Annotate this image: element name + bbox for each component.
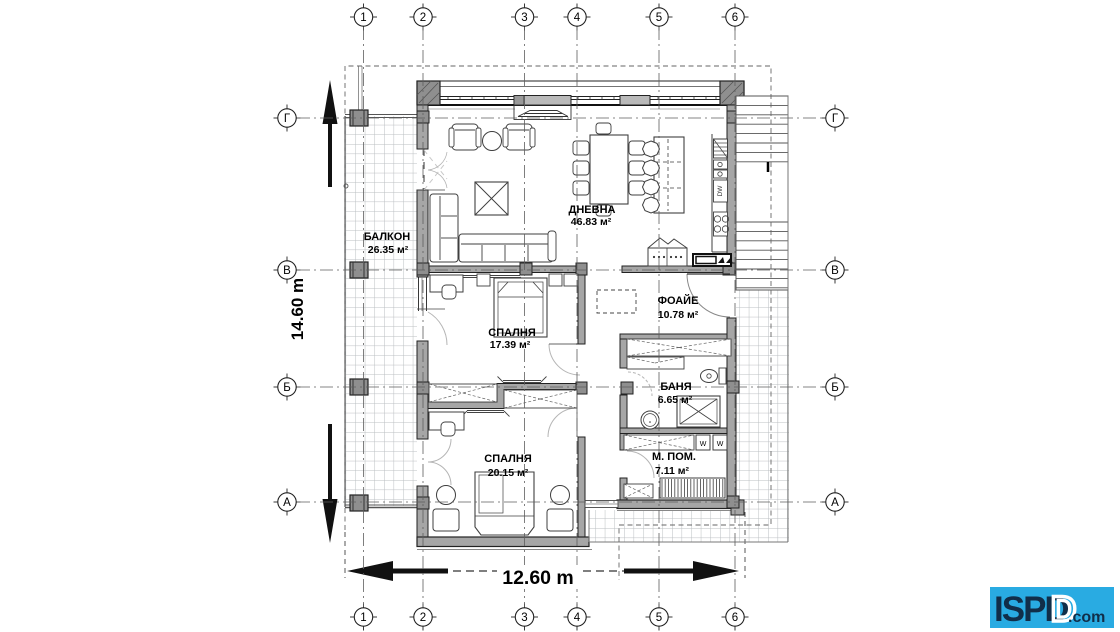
svg-text:ДНЕВНА: ДНЕВНА bbox=[569, 204, 616, 216]
svg-text:6: 6 bbox=[732, 12, 738, 24]
svg-text:4: 4 bbox=[574, 12, 581, 24]
svg-text:20.15 м²: 20.15 м² bbox=[488, 467, 529, 479]
svg-text:26.35 м²: 26.35 м² bbox=[368, 244, 409, 256]
svg-text:1: 1 bbox=[360, 12, 366, 24]
svg-text:5: 5 bbox=[656, 612, 662, 624]
svg-text:Б: Б bbox=[283, 382, 291, 394]
svg-text:10.78 м²: 10.78 м² bbox=[658, 309, 699, 321]
svg-text:А: А bbox=[283, 497, 291, 509]
svg-text:17.39 м²: 17.39 м² bbox=[490, 339, 531, 351]
svg-text:А: А bbox=[831, 497, 839, 509]
svg-text:СПАЛНЯ: СПАЛНЯ bbox=[488, 327, 536, 339]
svg-text:46.83 м²: 46.83 м² bbox=[571, 216, 612, 228]
svg-text:Б: Б bbox=[831, 382, 839, 394]
svg-text:12.60 m: 12.60 m bbox=[502, 567, 574, 589]
svg-text:14.60 m: 14.60 m bbox=[288, 278, 307, 340]
svg-text:6.65 м²: 6.65 м² bbox=[658, 394, 693, 406]
svg-text:W: W bbox=[700, 441, 707, 448]
svg-text:3: 3 bbox=[521, 12, 527, 24]
svg-text:5: 5 bbox=[656, 12, 662, 24]
svg-text:БАЛКОН: БАЛКОН bbox=[364, 231, 411, 243]
svg-text:.com: .com bbox=[1068, 609, 1105, 626]
svg-text:В: В bbox=[283, 265, 291, 277]
svg-text:Г: Г bbox=[284, 113, 291, 125]
svg-text:Г: Г bbox=[832, 113, 839, 125]
svg-text:2: 2 bbox=[420, 612, 426, 624]
svg-text:СПАЛНЯ: СПАЛНЯ bbox=[484, 453, 532, 465]
svg-text:ФОАЙЕ: ФОАЙЕ bbox=[658, 294, 699, 307]
svg-text:4: 4 bbox=[574, 612, 581, 624]
svg-text:3: 3 bbox=[521, 612, 527, 624]
svg-text:БАНЯ: БАНЯ bbox=[660, 381, 691, 393]
svg-text:6: 6 bbox=[732, 612, 738, 624]
svg-text:М. ПОМ.: М. ПОМ. bbox=[652, 451, 696, 463]
svg-text:1: 1 bbox=[360, 612, 366, 624]
svg-text:В: В bbox=[831, 265, 839, 277]
svg-text:DW: DW bbox=[717, 185, 724, 197]
svg-text:W: W bbox=[717, 441, 724, 448]
svg-text:7.11 м²: 7.11 м² bbox=[655, 465, 690, 477]
svg-text:2: 2 bbox=[420, 12, 426, 24]
